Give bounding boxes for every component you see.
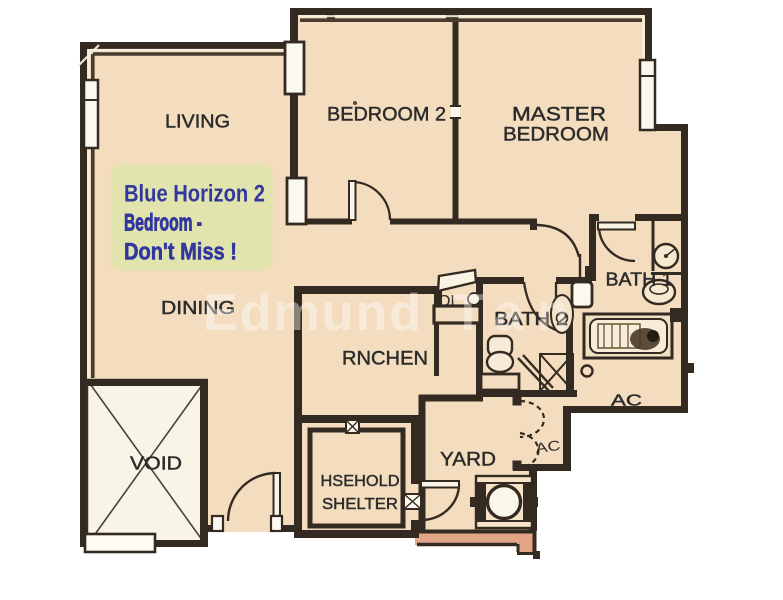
svg-text:BEDROOM 2: BEDROOM 2 (327, 105, 446, 126)
svg-text:RNCHEN: RNCHEN (342, 349, 428, 370)
svg-text:Bedroom -: Bedroom - (124, 210, 202, 237)
svg-text:MASTER: MASTER (512, 105, 606, 126)
svg-text:Don't Miss !: Don't Miss ! (124, 239, 237, 266)
svg-text:YARD: YARD (440, 450, 496, 471)
svg-text:LIVING: LIVING (165, 112, 230, 132)
svg-text:BATH 1: BATH 1 (606, 270, 673, 290)
svg-text:VOID: VOID (130, 453, 182, 474)
svg-text:Edmund: Edmund (203, 284, 423, 342)
svg-text:Blue Horizon 2: Blue Horizon 2 (124, 181, 265, 208)
svg-text:HSEHOLD: HSEHOLD (321, 473, 400, 490)
svg-text:SHELTER: SHELTER (322, 496, 398, 513)
svg-text:BEDROOM: BEDROOM (503, 125, 609, 146)
svg-text:Tan: Tan (452, 284, 583, 342)
svg-text:AC: AC (611, 393, 642, 410)
